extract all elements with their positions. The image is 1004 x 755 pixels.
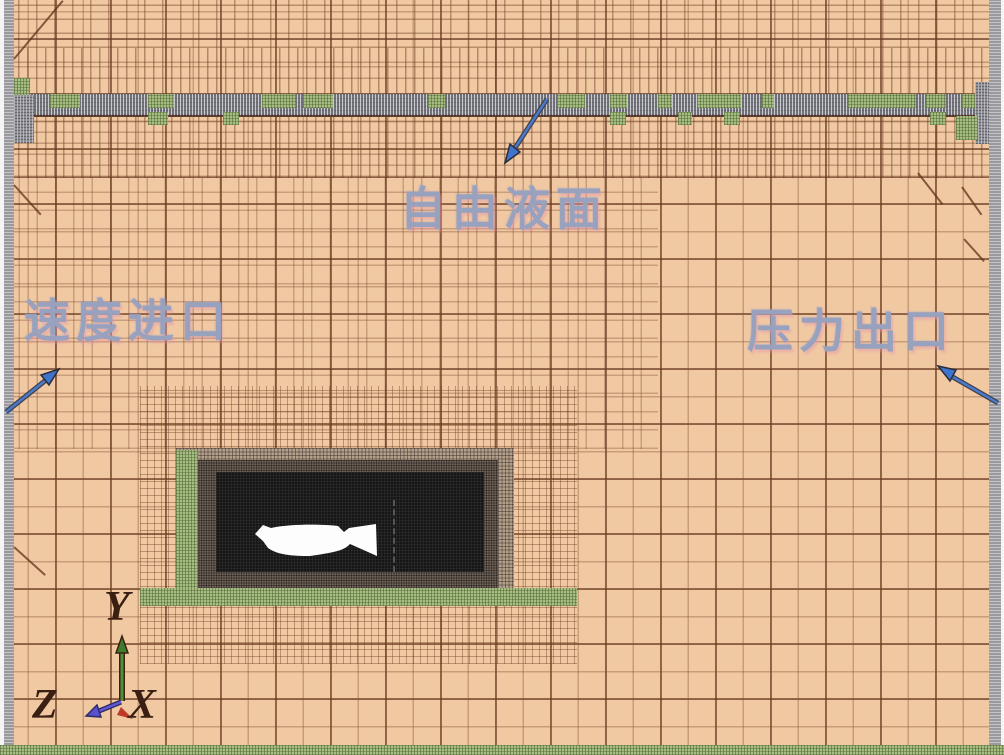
free-surface-label: 自由液面 xyxy=(400,186,608,232)
core-dashed-line xyxy=(393,500,395,572)
left-border xyxy=(0,0,4,755)
green-refinement-patch xyxy=(148,94,174,108)
mesh-layer-below-band xyxy=(0,117,1004,178)
outlet-boundary-strip xyxy=(989,0,1001,755)
axis-z-label: Z xyxy=(32,684,58,726)
green-refinement-patch xyxy=(762,94,774,108)
green-refinement-patch xyxy=(50,94,80,108)
green-refinement-patch xyxy=(148,112,168,125)
velocity-inlet-label: 速度进口 xyxy=(24,298,232,344)
green-refinement-patch xyxy=(926,94,946,108)
axis-x-label: X xyxy=(128,684,156,726)
green-refinement-strip-bottom xyxy=(140,588,577,606)
green-refinement-patch xyxy=(428,94,445,108)
green-refinement-strip-left xyxy=(176,450,198,602)
green-refinement-patch xyxy=(557,94,585,108)
cfd-mesh-figure: 自由液面 速度进口 压力出口 xyxy=(0,0,1004,755)
bottom-boundary-strip xyxy=(0,745,1004,755)
band-left-junction xyxy=(14,95,34,143)
green-refinement-patch xyxy=(223,112,239,125)
green-refinement-patch xyxy=(962,94,976,108)
green-refinement-patch xyxy=(848,94,916,108)
green-refinement-patch xyxy=(697,94,741,108)
green-refinement-patch xyxy=(610,94,627,108)
axis-y-label: Y xyxy=(104,586,130,628)
green-refinement-patch xyxy=(610,112,626,125)
green-refinement-patch xyxy=(658,94,672,108)
green-refinement-patch xyxy=(262,94,296,108)
pressure-outlet-label: 压力出口 xyxy=(747,308,955,354)
mesh-layer-top-medium xyxy=(0,0,1004,48)
green-refinement-patch xyxy=(303,94,333,108)
green-refinement-patch xyxy=(724,112,740,125)
green-refinement-patch xyxy=(956,116,978,140)
green-refinement-patch xyxy=(678,112,692,125)
mesh-layer-above-band xyxy=(0,48,1004,95)
inlet-boundary-strip xyxy=(4,0,14,755)
green-refinement-patch xyxy=(930,112,946,125)
vessel-silhouette xyxy=(250,512,382,560)
